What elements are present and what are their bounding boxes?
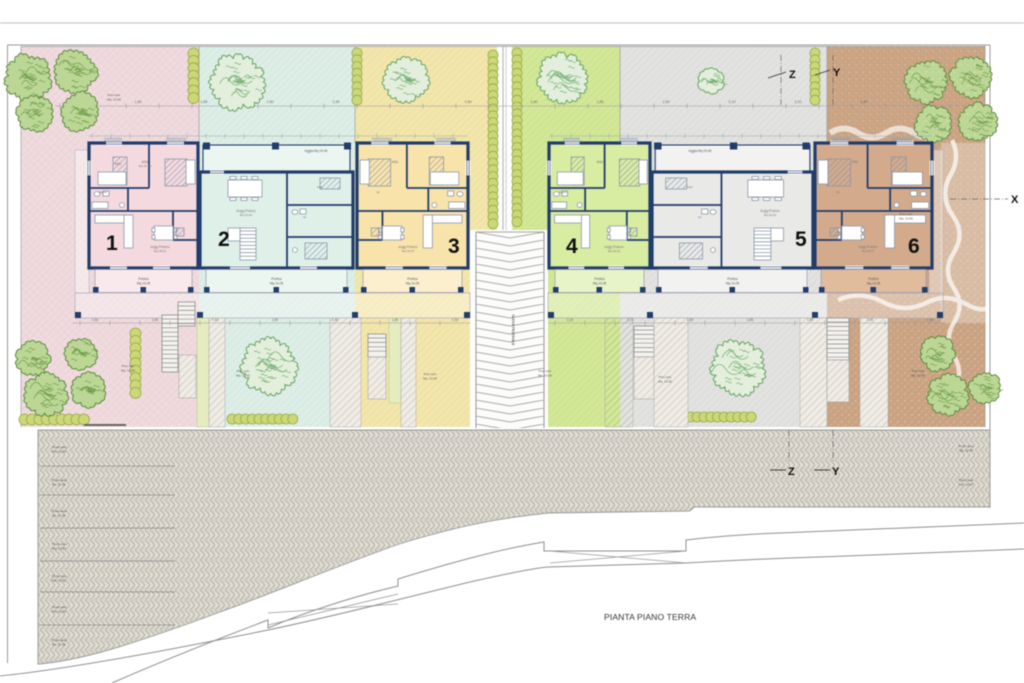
- svg-text:Mq. 12.50: Mq. 12.50: [52, 547, 66, 551]
- svg-text:Posto auto: Posto auto: [959, 444, 974, 448]
- svg-text:letto: letto: [392, 160, 399, 164]
- svg-text:Mq 14.05: Mq 14.05: [270, 282, 284, 286]
- svg-text:Posto auto: Posto auto: [959, 478, 974, 482]
- svg-text:2,10: 2,10: [795, 100, 802, 104]
- svg-text:Mq. 12.00: Mq. 12.00: [107, 98, 121, 102]
- svg-text:1,50: 1,50: [465, 100, 472, 104]
- svg-text:Mq. 12.00: Mq. 12.00: [538, 374, 552, 378]
- svg-text:Posto auto: Posto auto: [52, 542, 67, 546]
- svg-text:letto: letto: [317, 185, 323, 189]
- svg-text:Z: Z: [789, 69, 796, 81]
- svg-text:rip: rip: [836, 190, 840, 194]
- svg-text:Mq 14.05: Mq 14.05: [726, 282, 740, 286]
- svg-text:Posto auto: Posto auto: [52, 605, 67, 609]
- svg-text:1,50: 1,50: [272, 318, 279, 322]
- svg-text:Porz.sclo: Porz.sclo: [659, 375, 672, 379]
- svg-text:2,10: 2,10: [627, 318, 634, 322]
- svg-text:3: 3: [448, 235, 460, 258]
- svg-text:Mq 34.07: Mq 34.07: [862, 249, 875, 253]
- svg-text:1,85: 1,85: [201, 100, 208, 104]
- svg-text:6: 6: [908, 235, 920, 258]
- svg-text:Mq. 12.50: Mq. 12.50: [52, 610, 66, 614]
- svg-text:rip.: rip.: [698, 215, 702, 219]
- svg-text:Posto auto: Posto auto: [52, 638, 67, 642]
- svg-text:Z: Z: [788, 466, 795, 478]
- svg-text:Mq. 12.00: Mq. 12.00: [236, 374, 250, 378]
- svg-text:1: 1: [106, 232, 118, 255]
- svg-text:Mq. 12.50: Mq. 12.50: [52, 579, 66, 583]
- svg-text:Portico: Portico: [594, 277, 605, 281]
- svg-text:2: 2: [218, 228, 230, 251]
- svg-text:Mq. 12.00: Mq. 12.00: [423, 377, 437, 381]
- svg-text:1,85: 1,85: [597, 100, 604, 104]
- svg-text:1,50: 1,50: [135, 100, 142, 104]
- svg-text:2,40: 2,40: [332, 318, 339, 322]
- svg-text:Mq. 12.50: Mq. 12.50: [959, 483, 973, 487]
- svg-text:letto: letto: [597, 160, 604, 164]
- svg-text:Mq 14.05: Mq 14.05: [406, 282, 420, 286]
- svg-text:letto: letto: [115, 162, 122, 166]
- svg-text:2,45: 2,45: [333, 100, 340, 104]
- svg-text:Porz.sclo: Porz.sclo: [108, 93, 121, 97]
- svg-text:X: X: [1011, 194, 1019, 206]
- svg-text:Porz.sclo: Porz.sclo: [122, 364, 135, 368]
- svg-text:Portico: Portico: [727, 277, 738, 281]
- svg-text:loggia Mq 23.46: loggia Mq 23.46: [689, 149, 712, 153]
- svg-text:1,50: 1,50: [687, 318, 694, 322]
- svg-text:Mq 34.07: Mq 34.07: [402, 249, 415, 253]
- svg-text:Mq. 12.00: Mq. 12.00: [899, 217, 913, 221]
- svg-text:Mq 32.52: Mq 32.52: [764, 213, 777, 217]
- svg-text:1,50: 1,50: [807, 318, 814, 322]
- svg-text:Portico: Portico: [271, 277, 282, 281]
- svg-text:bagno: bagno: [559, 190, 568, 194]
- svg-text:Posto auto: Posto auto: [52, 445, 67, 449]
- svg-text:letto: letto: [852, 160, 859, 164]
- svg-text:1,50: 1,50: [92, 318, 99, 322]
- svg-text:Y: Y: [833, 67, 841, 79]
- svg-text:letto: letto: [687, 185, 693, 189]
- svg-text:Y: Y: [832, 466, 840, 478]
- svg-text:1,85: 1,85: [747, 318, 754, 322]
- svg-text:PIANTA PIANO TERRA: PIANTA PIANO TERRA: [604, 612, 696, 622]
- svg-text:rip.: rip.: [303, 215, 307, 219]
- svg-text:2,10: 2,10: [567, 318, 574, 322]
- svg-text:2,10: 2,10: [729, 100, 736, 104]
- svg-text:Posto auto: Posto auto: [52, 509, 67, 513]
- svg-text:Mq 32.52: Mq 32.52: [240, 213, 253, 217]
- svg-text:Mq. 12.00: Mq. 12.00: [911, 374, 925, 378]
- svg-text:rip: rip: [376, 190, 380, 194]
- svg-text:2,40: 2,40: [531, 100, 538, 104]
- svg-text:Mq. 12.00: Mq. 12.00: [658, 380, 672, 384]
- svg-text:7,44: 7,44: [212, 318, 219, 322]
- svg-text:Mq 14.05: Mq 14.05: [593, 282, 607, 286]
- svg-text:Mq 14.05: Mq 14.05: [137, 282, 151, 286]
- svg-text:Portico: Portico: [868, 277, 879, 281]
- svg-text:loggia Mq 23.46: loggia Mq 23.46: [305, 149, 328, 153]
- svg-text:Posto auto: Posto auto: [52, 478, 67, 482]
- svg-text:2,45: 2,45: [152, 318, 159, 322]
- svg-text:Mq. 12.50: Mq. 12.50: [52, 514, 66, 518]
- svg-text:7,44: 7,44: [927, 318, 934, 322]
- svg-text:bagno: bagno: [99, 190, 108, 194]
- svg-text:Mq. 12.00: Mq. 12.00: [121, 369, 135, 373]
- svg-text:1,50: 1,50: [267, 100, 274, 104]
- svg-text:Porz.sclo: Porz.sclo: [237, 369, 250, 373]
- svg-text:Porz.sclo: Porz.sclo: [900, 212, 913, 216]
- svg-text:1,50: 1,50: [663, 100, 670, 104]
- svg-text:4: 4: [566, 235, 578, 258]
- svg-text:Mq. 12.50: Mq. 12.50: [52, 483, 66, 487]
- svg-text:Mq 14.05: Mq 14.05: [867, 282, 881, 286]
- svg-text:Posto auto: Posto auto: [52, 574, 67, 578]
- svg-text:Mq 36.01: Mq 36.01: [154, 249, 167, 253]
- svg-text:Mq 14.50: Mq 14.50: [139, 164, 152, 168]
- svg-text:Mq. 12.50: Mq. 12.50: [52, 643, 66, 647]
- svg-text:5: 5: [795, 228, 807, 251]
- svg-text:1,85: 1,85: [392, 318, 399, 322]
- svg-text:Portico: Portico: [407, 277, 418, 281]
- svg-text:Mq. 12.50: Mq. 12.50: [52, 450, 66, 454]
- svg-text:Porz.sclo: Porz.sclo: [424, 372, 437, 376]
- svg-text:NUOVA PEDONALE: NUOVA PEDONALE: [511, 314, 515, 346]
- svg-text:Porz.sclo: Porz.sclo: [539, 369, 552, 373]
- svg-text:Mq 36.01: Mq 36.01: [608, 249, 621, 253]
- svg-text:2,45: 2,45: [867, 318, 874, 322]
- svg-text:Portico: Portico: [138, 277, 149, 281]
- svg-text:1,50: 1,50: [452, 318, 459, 322]
- svg-text:Porz.sclo: Porz.sclo: [912, 369, 925, 373]
- svg-text:Mq. 12.50: Mq. 12.50: [959, 449, 973, 453]
